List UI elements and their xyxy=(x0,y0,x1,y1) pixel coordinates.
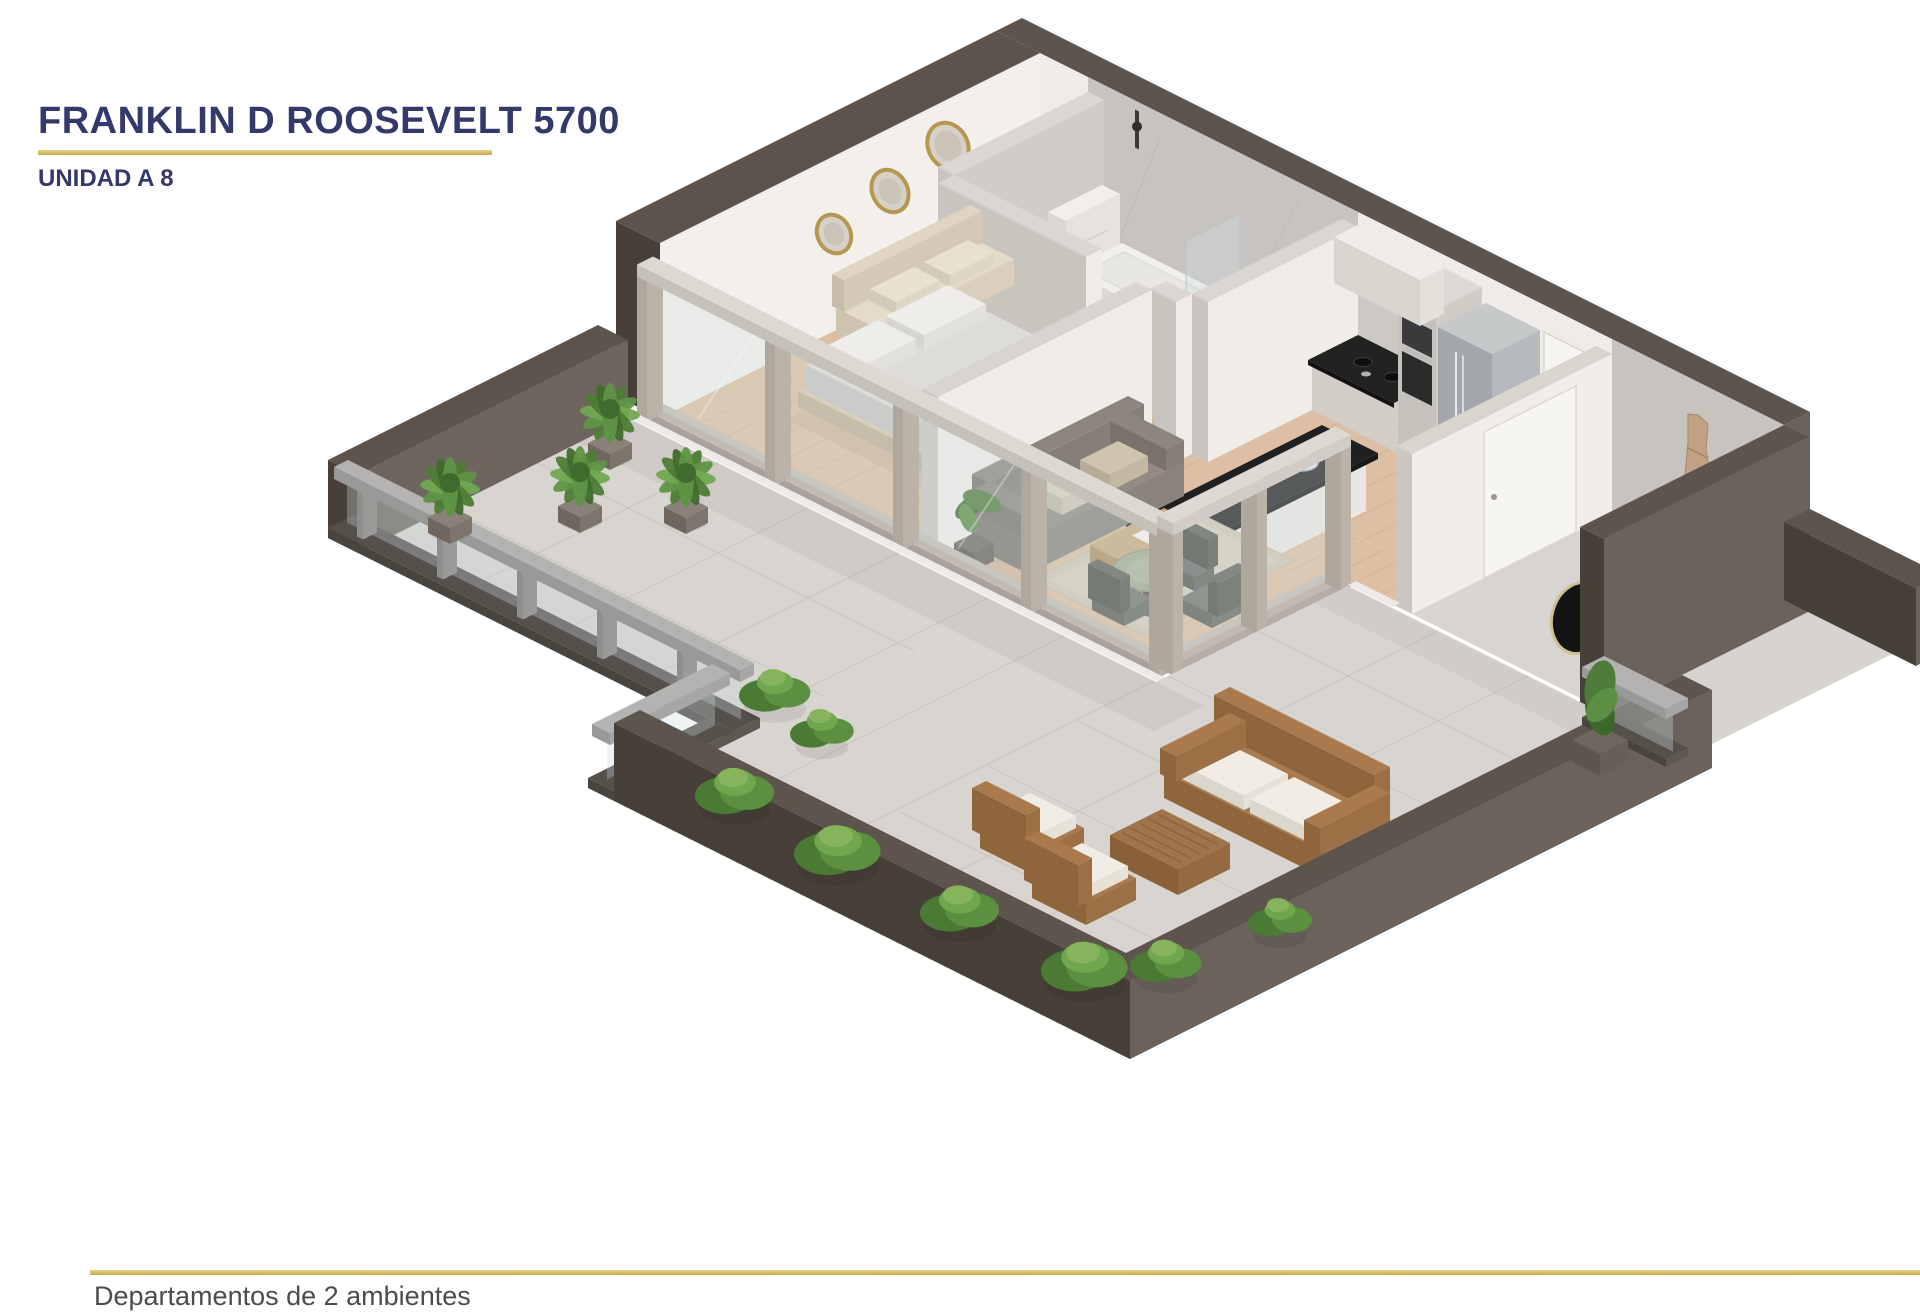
unit-label: UNIDAD A 8 xyxy=(38,165,174,193)
footer-caption: Departamentos de 2 ambientes xyxy=(94,1281,471,1312)
footer-rule xyxy=(90,1270,1920,1275)
page-title: FRANKLIN D ROOSEVELT 5700 xyxy=(38,100,620,143)
title-underline xyxy=(38,150,492,155)
presentation-page: { "header": { "title": "FRANKLIN D ROOSE… xyxy=(0,0,1920,1315)
floorplan-render xyxy=(0,0,1920,1315)
